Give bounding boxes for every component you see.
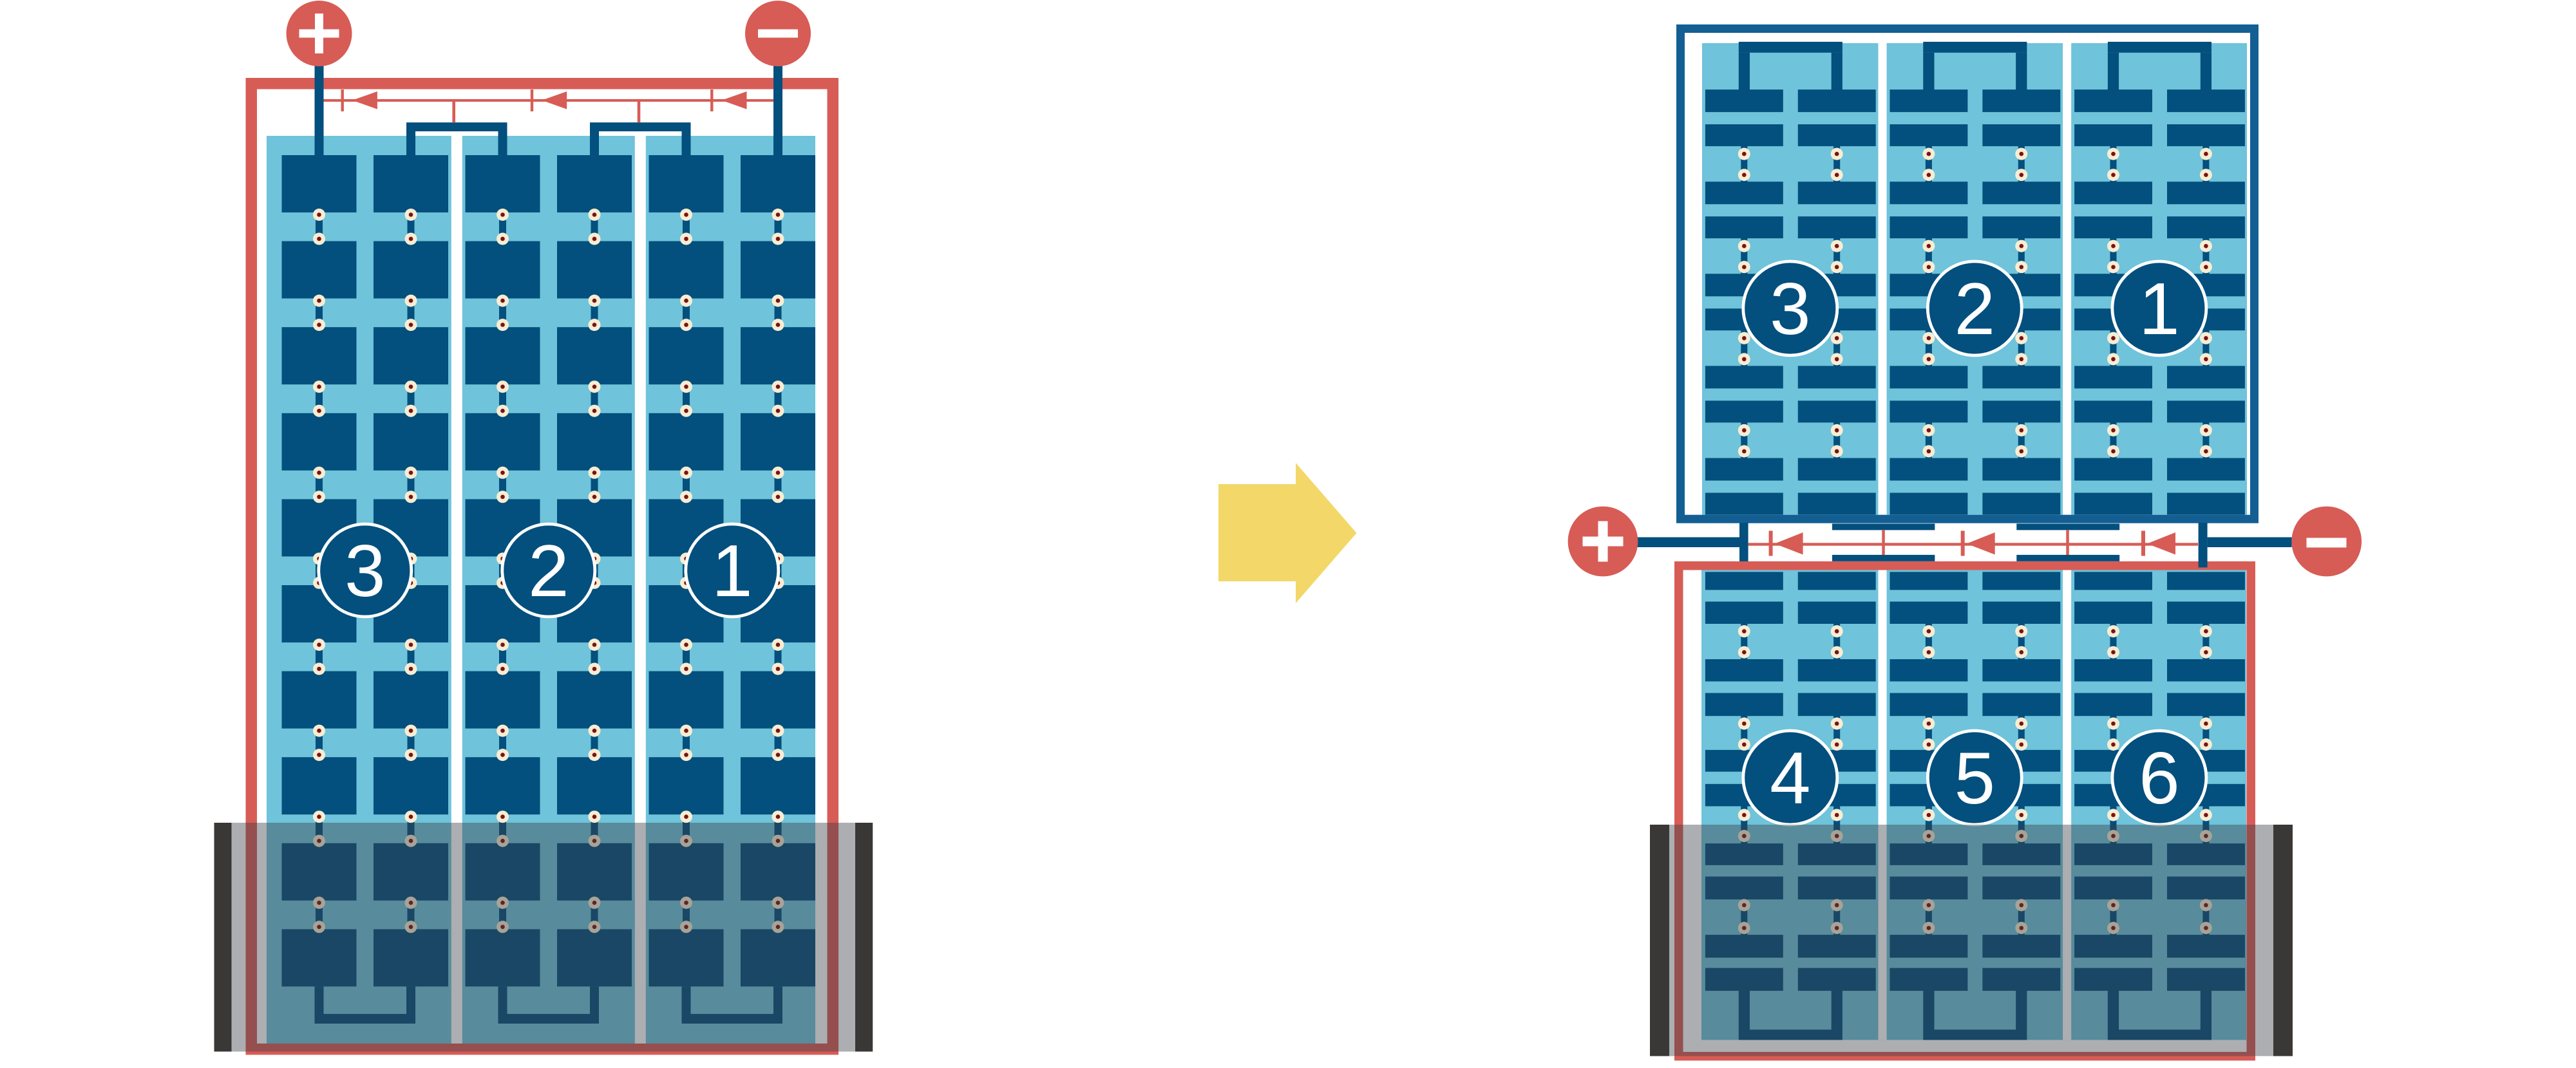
- svg-text:6: 6: [2139, 738, 2179, 820]
- svg-text:5: 5: [1955, 738, 1995, 820]
- svg-text:3: 3: [1770, 268, 1810, 350]
- svg-text:2: 2: [1955, 268, 1995, 350]
- svg-text:4: 4: [1770, 738, 1810, 820]
- svg-text:1: 1: [2139, 268, 2179, 350]
- svg-text:1: 1: [712, 530, 752, 612]
- svg-text:3: 3: [345, 530, 385, 612]
- svg-text:2: 2: [528, 530, 569, 612]
